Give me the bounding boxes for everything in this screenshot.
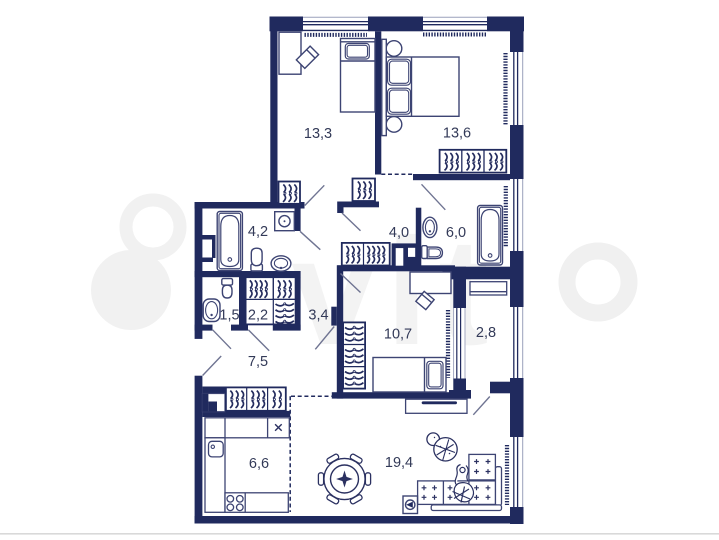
svg-text:6,6: 6,6 xyxy=(249,456,269,472)
svg-text:6,0: 6,0 xyxy=(446,225,466,241)
svg-text:13,3: 13,3 xyxy=(304,126,332,142)
svg-text:4,0: 4,0 xyxy=(389,225,409,241)
svg-text:2,2: 2,2 xyxy=(248,308,268,324)
svg-text:2,8: 2,8 xyxy=(476,325,496,341)
svg-text:7,5: 7,5 xyxy=(248,354,268,370)
svg-text:13,6: 13,6 xyxy=(443,126,471,142)
svg-text:4,2: 4,2 xyxy=(248,224,268,240)
svg-text:10,7: 10,7 xyxy=(384,327,412,343)
svg-text:19,4: 19,4 xyxy=(385,455,413,471)
svg-text:1,5: 1,5 xyxy=(219,308,239,324)
svg-text:3,4: 3,4 xyxy=(308,308,328,324)
